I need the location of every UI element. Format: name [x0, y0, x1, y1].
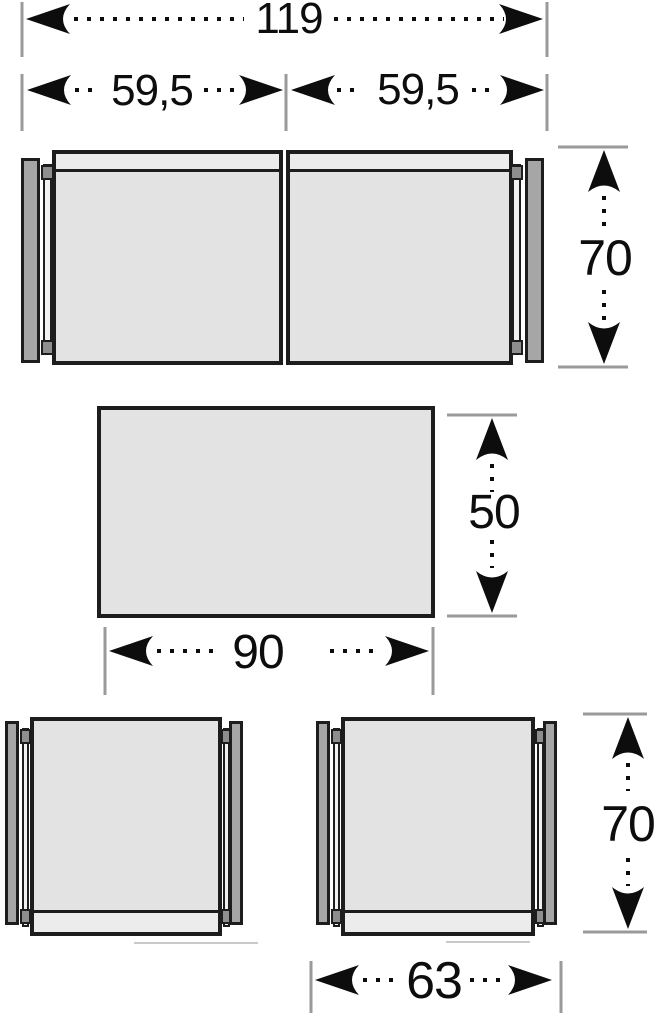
table-depth-label: 50 [468, 489, 519, 537]
arrow-up-icon [612, 717, 644, 759]
arrow-left-icon [27, 75, 71, 105]
arrow-right-icon [499, 4, 543, 34]
arrow-left-icon [109, 636, 153, 666]
arrow-left-icon [26, 4, 70, 34]
arrow-right-icon [385, 636, 429, 666]
chair-width-label: 63 [406, 955, 462, 1007]
arrow-right-icon [500, 75, 544, 105]
sofa-depth-label: 70 [578, 233, 632, 283]
arrow-left-icon [291, 75, 335, 105]
arrow-down-icon [476, 571, 508, 613]
dimension-graphics [0, 0, 655, 1020]
table-width-label: 90 [232, 629, 283, 677]
arrow-right-icon [508, 965, 552, 995]
arrow-up-icon [588, 150, 620, 192]
furniture-dimension-diagram: 119 59,5 59,5 70 50 90 70 63 [0, 0, 655, 1020]
arrow-right-icon [239, 75, 283, 105]
sofa-total-width-label: 119 [255, 0, 322, 41]
arrow-left-icon [315, 965, 359, 995]
arrow-down-icon [612, 887, 644, 929]
sofa-right-seat-width-label: 59,5 [377, 68, 459, 112]
chair-depth-label: 70 [601, 799, 655, 849]
arrow-down-icon [588, 322, 620, 364]
arrow-up-icon [476, 418, 508, 460]
sofa-left-seat-width-label: 59,5 [111, 69, 193, 113]
